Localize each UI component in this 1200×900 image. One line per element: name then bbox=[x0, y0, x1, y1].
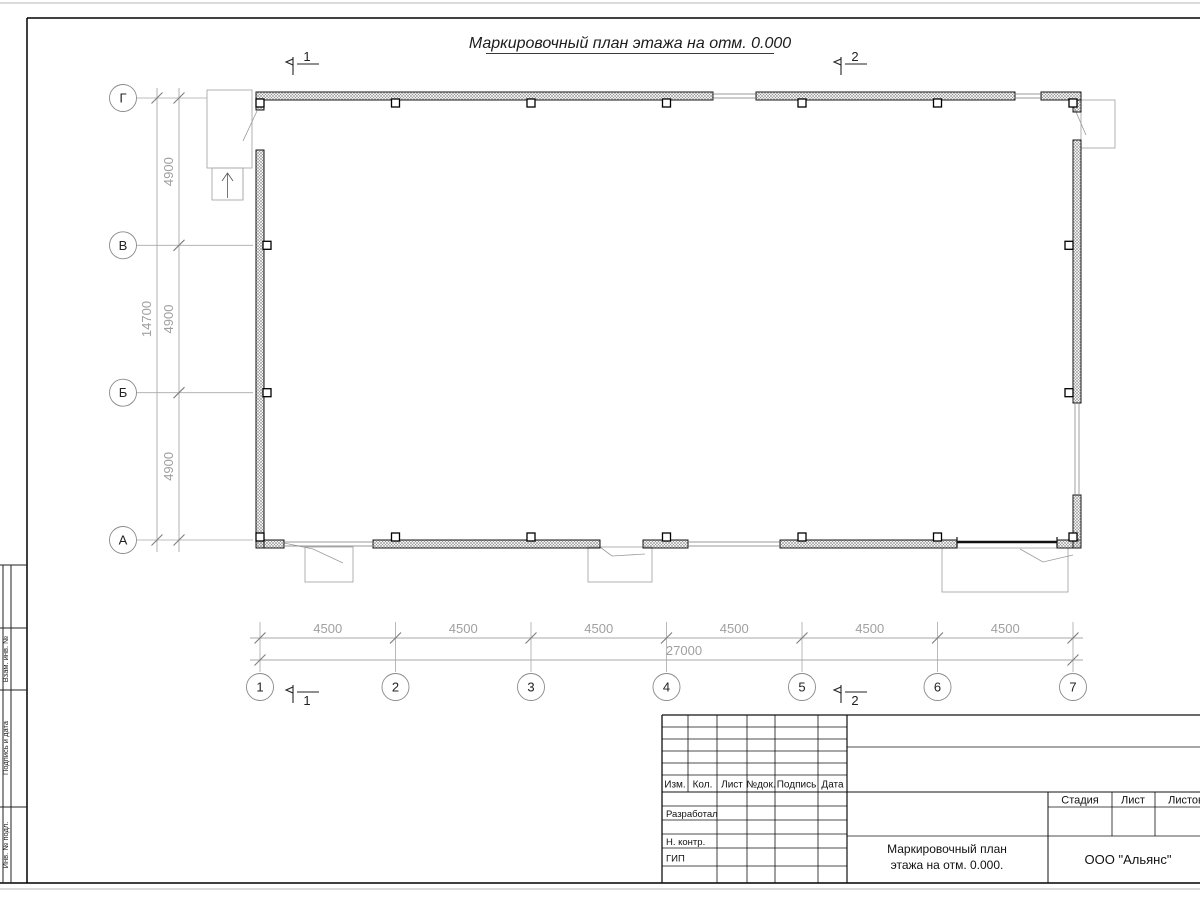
column-marker-bottom bbox=[663, 533, 671, 541]
dim-value-4500: 4500 bbox=[313, 621, 342, 636]
dim-value-4500: 4500 bbox=[449, 621, 478, 636]
column-marker-left bbox=[263, 241, 271, 249]
section-mark-2-top: 2 bbox=[834, 49, 867, 75]
column-marker-bottom bbox=[392, 533, 400, 541]
drawing-title: Маркировочный план этажа на отм. 0.000 bbox=[469, 35, 791, 54]
dim-value-4500: 4500 bbox=[720, 621, 749, 636]
margin-col-label: Подпись и дата bbox=[1, 720, 10, 775]
dim-value-4500: 4500 bbox=[855, 621, 884, 636]
column-marker-bottom bbox=[527, 533, 535, 541]
section-mark-label: 2 bbox=[851, 49, 858, 64]
dimensions-bottom: 450045004500450045004500270001234567 bbox=[247, 621, 1087, 701]
dim-value-4500: 4500 bbox=[584, 621, 613, 636]
section-mark-1-bottom: 1 bbox=[286, 685, 319, 708]
drawing-title-text: Маркировочный план этажа на отм. 0.000 bbox=[469, 35, 791, 52]
column-marker-top bbox=[392, 99, 400, 107]
sheet-frame bbox=[0, 18, 1200, 883]
axis-letter: Б bbox=[119, 385, 128, 400]
tb-role-label: Разработал bbox=[666, 809, 718, 820]
floor-plan-canvas: Взам. инв. №Подпись и датаИнв. № подл. М… bbox=[0, 0, 1200, 900]
section-mark-1-top: 1 bbox=[286, 49, 319, 75]
title-block-company: ООО "Альянс" bbox=[1085, 852, 1172, 867]
section-mark-arrow bbox=[834, 59, 841, 65]
dim-value-4900: 4900 bbox=[161, 452, 176, 481]
tb-stage-header: Листов bbox=[1168, 795, 1200, 807]
tb-change-header: №док. bbox=[746, 780, 775, 791]
column-marker-top bbox=[256, 99, 264, 107]
porch-bottom-2 bbox=[588, 547, 652, 582]
title-block-doc-title-2: этажа на отм. 0.000. bbox=[891, 858, 1004, 872]
dim-value-4500: 4500 bbox=[991, 621, 1020, 636]
dim-value-4900: 4900 bbox=[161, 305, 176, 334]
section-mark-arrow bbox=[834, 687, 841, 693]
section-marks: 1212 bbox=[286, 49, 867, 708]
axis-number: 7 bbox=[1069, 680, 1076, 695]
column-marker-right bbox=[1065, 389, 1073, 397]
axis-number: 5 bbox=[798, 680, 805, 695]
column-marker-bottom bbox=[256, 533, 264, 541]
wall-right-1 bbox=[1073, 140, 1081, 403]
tb-change-header: Кол. bbox=[693, 780, 713, 791]
section-mark-2-bottom: 2 bbox=[834, 685, 867, 708]
axis-letter: А bbox=[119, 533, 128, 548]
wall-left bbox=[256, 150, 264, 548]
column-marker-top bbox=[663, 99, 671, 107]
section-mark-label: 1 bbox=[303, 49, 310, 64]
axis-number: 6 bbox=[934, 680, 941, 695]
porch-bottom-1 bbox=[305, 547, 353, 582]
porch-top-right bbox=[1081, 100, 1115, 148]
paper-edges bbox=[0, 3, 1200, 889]
dim-value-27000: 27000 bbox=[666, 643, 702, 658]
column-marker-left bbox=[263, 389, 271, 397]
column-marker-top bbox=[934, 99, 942, 107]
column-marker-top bbox=[527, 99, 535, 107]
dim-value-4900: 4900 bbox=[161, 157, 176, 186]
wall-bottom-2 bbox=[373, 540, 600, 548]
tb-change-header: Лист bbox=[721, 780, 743, 791]
porch-top-left bbox=[207, 90, 252, 168]
tb-change-header: Изм. bbox=[664, 780, 685, 791]
axis-number: 1 bbox=[256, 680, 263, 695]
tb-change-header: Дата bbox=[821, 780, 844, 791]
wall-top-1 bbox=[256, 92, 713, 100]
tb-stage-header: Лист bbox=[1121, 795, 1145, 807]
tb-role-label: ГИП bbox=[666, 854, 685, 865]
tb-role-label: Н. контр. bbox=[666, 837, 705, 848]
title-block-doc-title-1: Маркировочный план bbox=[887, 842, 1007, 856]
section-mark-label: 1 bbox=[303, 693, 310, 708]
section-mark-label: 2 bbox=[851, 693, 858, 708]
margin-col-label: Инв. № подл. bbox=[1, 822, 10, 869]
column-marker-right bbox=[1065, 241, 1073, 249]
axis-letter: В bbox=[119, 238, 128, 253]
drawing-sheet: Взам. инв. №Подпись и датаИнв. № подл. М… bbox=[0, 0, 1200, 900]
section-mark-arrow bbox=[286, 59, 293, 65]
axis-number: 2 bbox=[392, 680, 399, 695]
door-swing-gate bbox=[1020, 549, 1073, 562]
dim-value-14700: 14700 bbox=[139, 301, 154, 337]
margin-col-label: Взам. инв. № bbox=[1, 636, 10, 682]
column-marker-top bbox=[798, 99, 806, 107]
axis-number: 3 bbox=[527, 680, 534, 695]
door-swing-bottom-2 bbox=[600, 547, 645, 556]
floor-plan bbox=[207, 90, 1115, 592]
tb-change-header: Подпись bbox=[777, 780, 817, 791]
column-marker-bottom bbox=[1069, 533, 1077, 541]
axis-letter: Г bbox=[119, 91, 126, 106]
column-marker-top bbox=[1069, 99, 1077, 107]
title-block: Маркировочный план этажа на отм. 0.000. … bbox=[662, 715, 1200, 883]
wall-top-2 bbox=[756, 92, 1015, 100]
axis-number: 4 bbox=[663, 680, 670, 695]
left-margin-column: Взам. инв. №Подпись и датаИнв. № подл. bbox=[0, 565, 27, 883]
porch-bottom-gate bbox=[942, 548, 1068, 592]
tb-stage-header: Стадия bbox=[1061, 795, 1099, 807]
door-swing-top-left bbox=[243, 111, 257, 141]
dimensions-left: 49004900490014700ГВБА bbox=[110, 85, 254, 554]
section-mark-arrow bbox=[286, 687, 293, 693]
column-marker-bottom bbox=[934, 533, 942, 541]
column-marker-bottom bbox=[798, 533, 806, 541]
